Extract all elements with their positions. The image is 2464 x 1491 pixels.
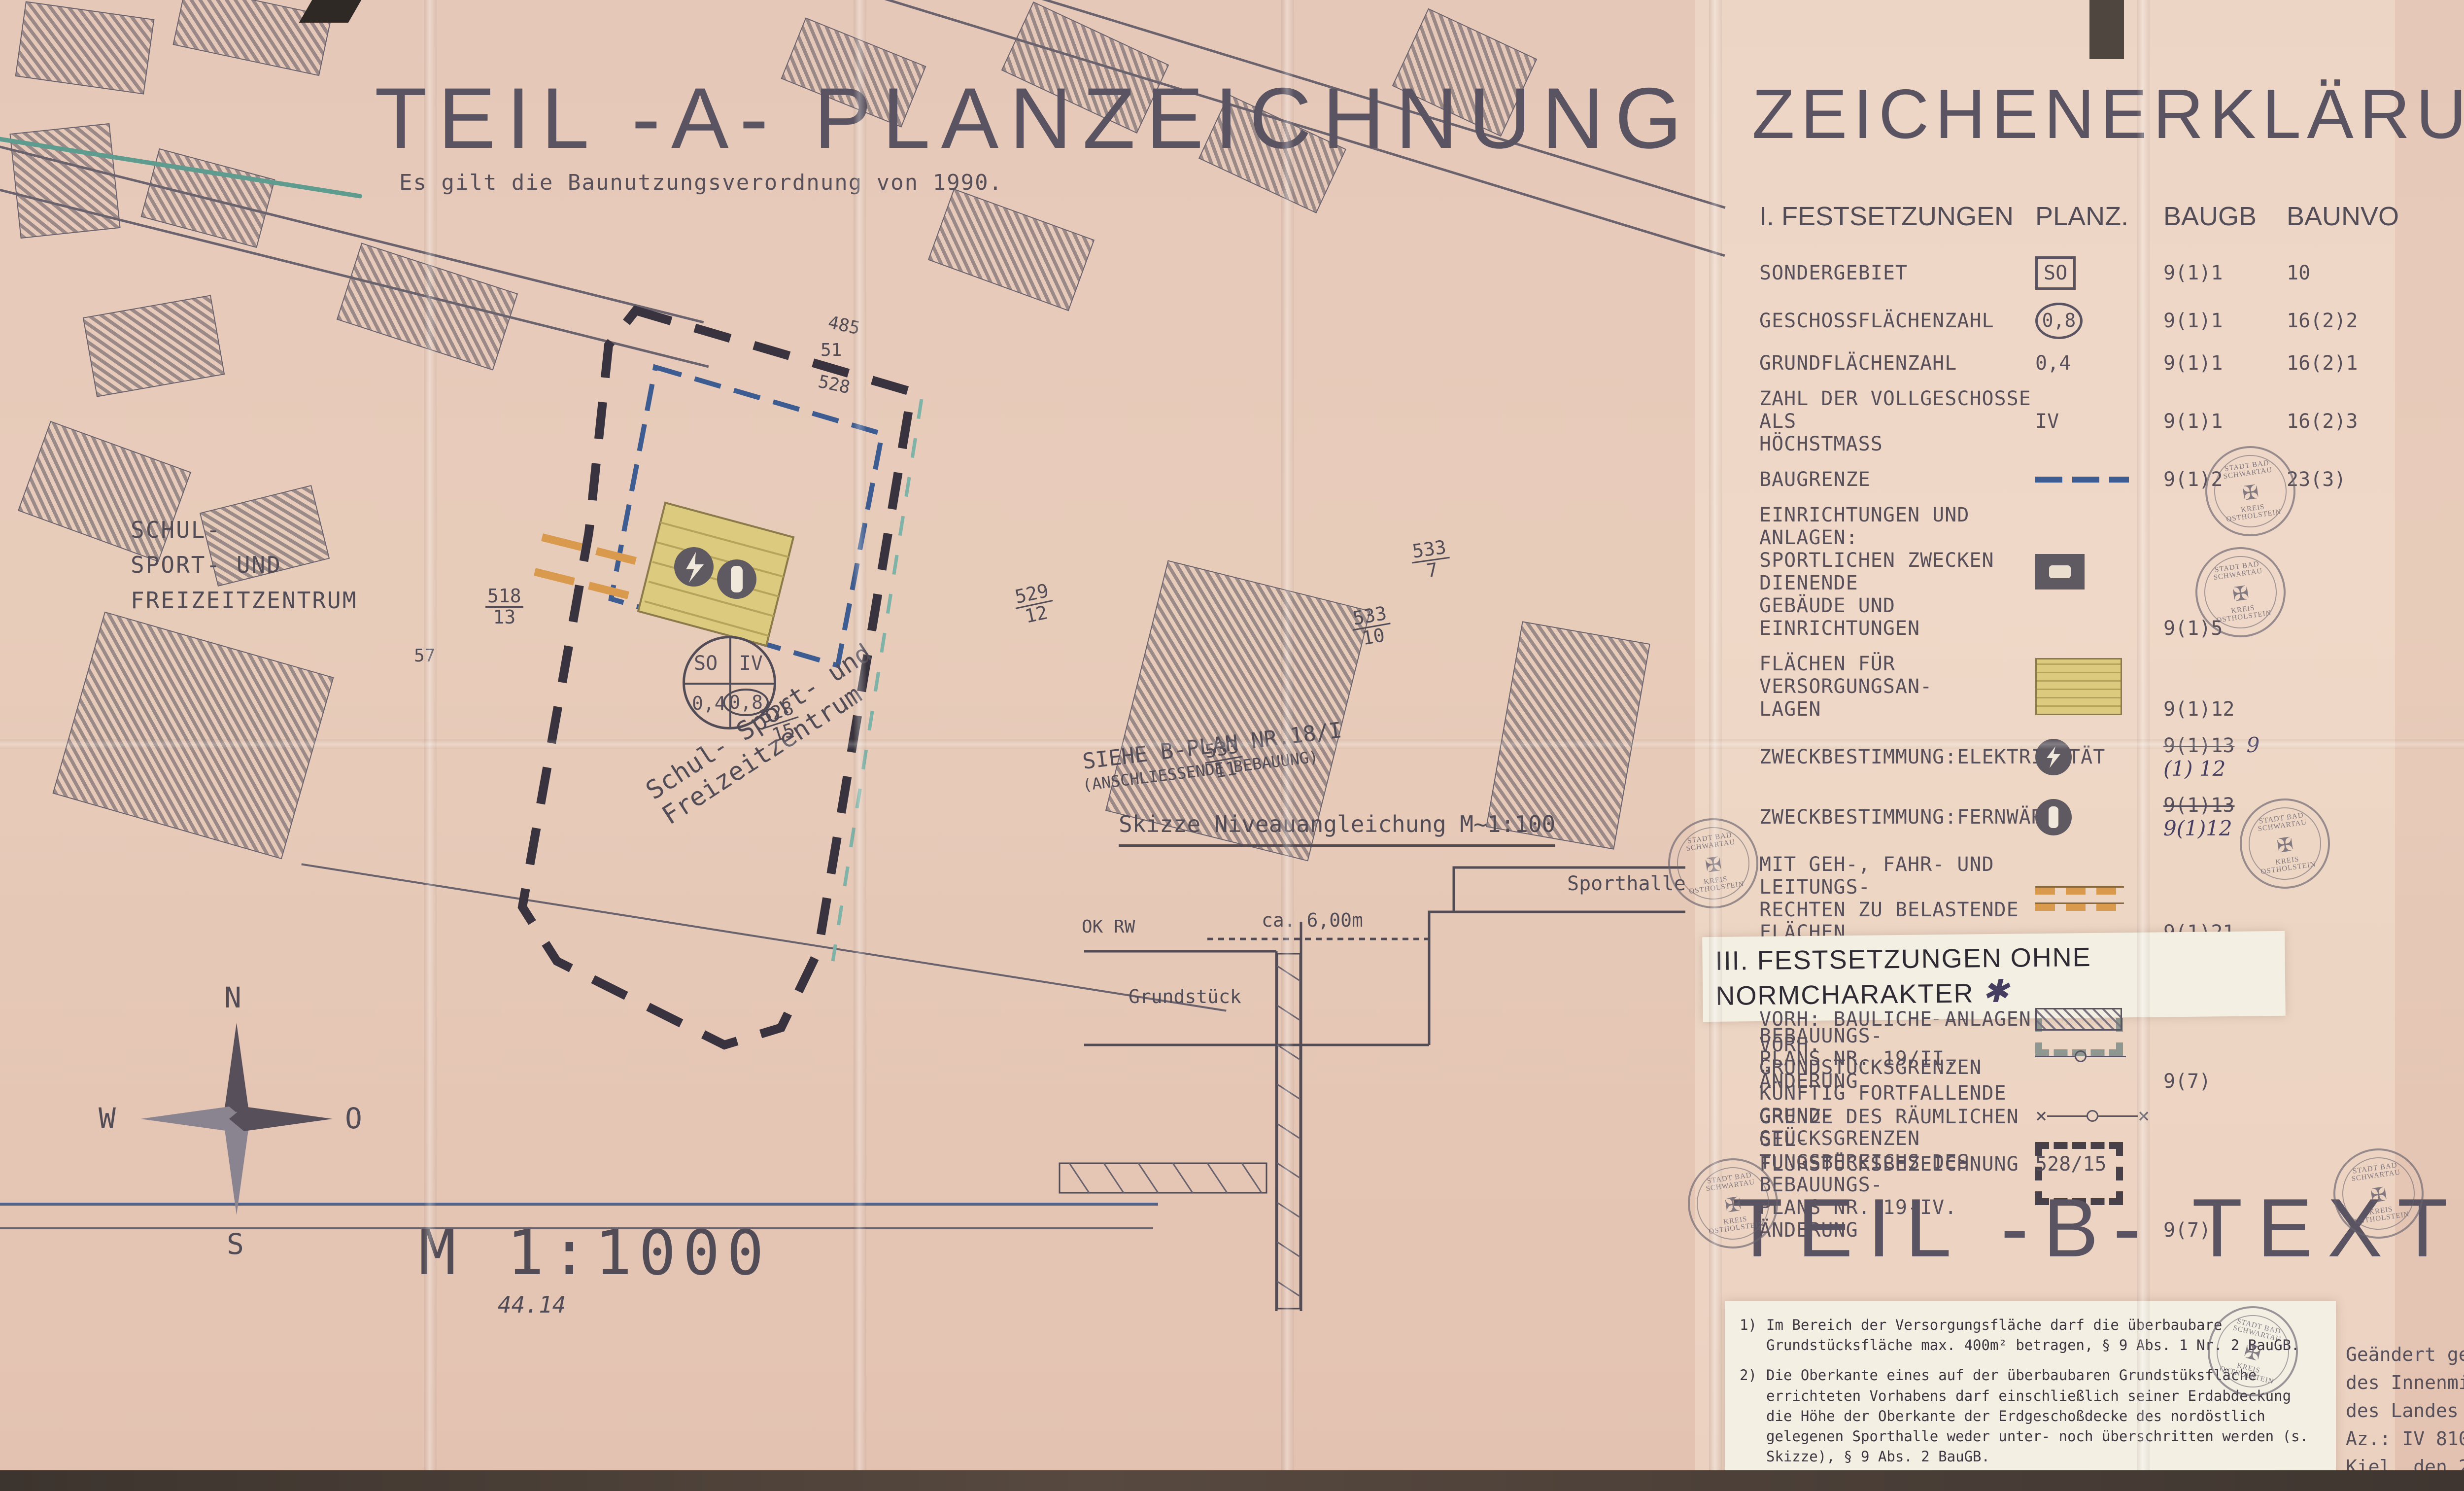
section3-table: VORH: BAULICHE ANLAGEN VORH. GRUNDSTÜCKS…	[1759, 1008, 2395, 1188]
row-vorh-grenzen: VORH. GRUNDSTÜCKSGRENZEN	[1759, 1034, 2395, 1079]
legend-col-baugb: BAUGB	[2163, 201, 2287, 232]
versorgungsflaeche-symbol	[2035, 658, 2122, 715]
sketch-ground-hatch	[1069, 1163, 1262, 1193]
legend-row-sondergebiet: SONDERGEBIET SO 9(1)1 10	[1759, 256, 2395, 290]
parcel-518-13: 51813	[485, 587, 523, 627]
sporthalle-label: Sporthalle	[1567, 872, 1686, 895]
legend-col-festsetzungen: I. FESTSETZUNGEN	[1759, 201, 2035, 232]
seal-shield-icon: ✠	[2275, 829, 2294, 859]
edge-mark	[2089, 0, 2124, 59]
parcel-533-7: 5337	[1409, 537, 1452, 583]
parcel-533-10: 53310	[1349, 603, 1394, 650]
geaendert-note: Geändert gemäß Erlaß des Innenministers …	[2346, 1341, 2464, 1481]
row-fortfallende-grenzen: KÜNFTIG FORTFALLENDE GRUND- STÜCKSGRENZE…	[1759, 1082, 2395, 1150]
versorgungsflaeche-area	[638, 503, 793, 646]
iv-value: IV	[739, 652, 763, 675]
hand-asterisk: ✱	[1982, 973, 2010, 1010]
sketch-ground-bar	[1060, 1163, 1266, 1193]
so-box-symbol: SO	[2035, 256, 2076, 290]
skizze-caption: Skizze Niveauangleichung M~1:100	[1119, 811, 1555, 847]
so-value: SO	[694, 652, 718, 675]
legend-row-baugrenze: BAUGRENZE 9(1)2 23(3)	[1759, 468, 2395, 491]
dimension-label: ca. 6,00m	[1262, 909, 1363, 931]
fold-crease-horizontal	[0, 739, 2464, 749]
legend-header: I. FESTSETZUNGEN PLANZ. BAUGB BAUNVO	[1759, 201, 2395, 232]
compass-rose-icon	[140, 1023, 333, 1215]
vorh-anlagen-symbol	[2035, 1008, 2122, 1031]
legend-row-grz: GRUNDFLÄCHENZAHL 0,4 9(1)1 16(2)1	[1759, 352, 2395, 375]
grz-value: 0,4	[692, 693, 726, 714]
compass-o: O	[345, 1102, 362, 1135]
baugrenze-symbol	[2035, 477, 2129, 483]
teil-a-title: TEIL -A- PLANZEICHNUNG	[375, 69, 1693, 168]
compass-s: S	[227, 1227, 244, 1261]
legend-title: ZEICHENERKLÄRUNG	[1752, 74, 2464, 155]
compass-n: N	[224, 981, 241, 1014]
legend-row-versorgung: FLÄCHEN FÜR VERSORGUNGSAN- LAGEN 9(1)12	[1759, 653, 2395, 721]
legend-row-vollgeschosse: ZAHL DER VOLLGESCHOSSE ALS HÖCHSTMASS IV…	[1759, 387, 2395, 455]
plan-sheet: TEIL -A- PLANZEICHNUNG Es gilt die Baunu…	[0, 0, 2464, 1491]
fernwaerme-bar-icon	[731, 566, 743, 592]
sportgebaeude-symbol	[2035, 554, 2085, 589]
legend-row-einrichtungen: EINRICHTUNGEN UND ANLAGEN: SPORTLICHEN Z…	[1759, 504, 2395, 640]
parcel-51: 51	[821, 340, 842, 360]
row-flurstueck: FLURSTÜCKSBEZEICHNUNG 528/15	[1759, 1153, 2395, 1176]
row-vorh-anlagen: VORH: BAULICHE ANLAGEN	[1759, 1008, 2395, 1031]
seal-shield-icon: ✠	[1723, 1188, 1743, 1218]
seal-shield-icon: ✠	[2369, 1179, 2388, 1209]
hand-note-44: 44.14	[498, 1291, 566, 1318]
legend-row-gfz: GESCHOSSFLÄCHENZAHL 0,8 9(1)1 16(2)2	[1759, 303, 2395, 339]
niveau-sketch-drawing	[1084, 867, 1685, 1311]
gfz-circle-symbol: 0,8	[2035, 303, 2083, 339]
map-scale: M 1:1000	[419, 1217, 771, 1289]
zone-label-caps: SCHUL- SPORT- UND FREIZEITZENTRUM	[131, 513, 357, 618]
teil-a-subtitle: Es gilt die Baunutzungsverordnung von 19…	[399, 170, 1003, 195]
fernwaerme-symbol	[2035, 799, 2072, 835]
seal-shield-icon: ✠	[2231, 577, 2250, 607]
ok-rw-label: OK RW	[1082, 917, 1135, 937]
grundstueck-label: Grundstück	[1129, 986, 1241, 1007]
seal-shield-icon: ✠	[2242, 1336, 2263, 1367]
seal-shield-icon: ✠	[2241, 476, 2260, 506]
compass-w: W	[99, 1102, 116, 1135]
sheet-bottom-edge	[0, 1470, 2464, 1491]
legend-col-baunvo: BAUNVO	[2287, 201, 2395, 232]
